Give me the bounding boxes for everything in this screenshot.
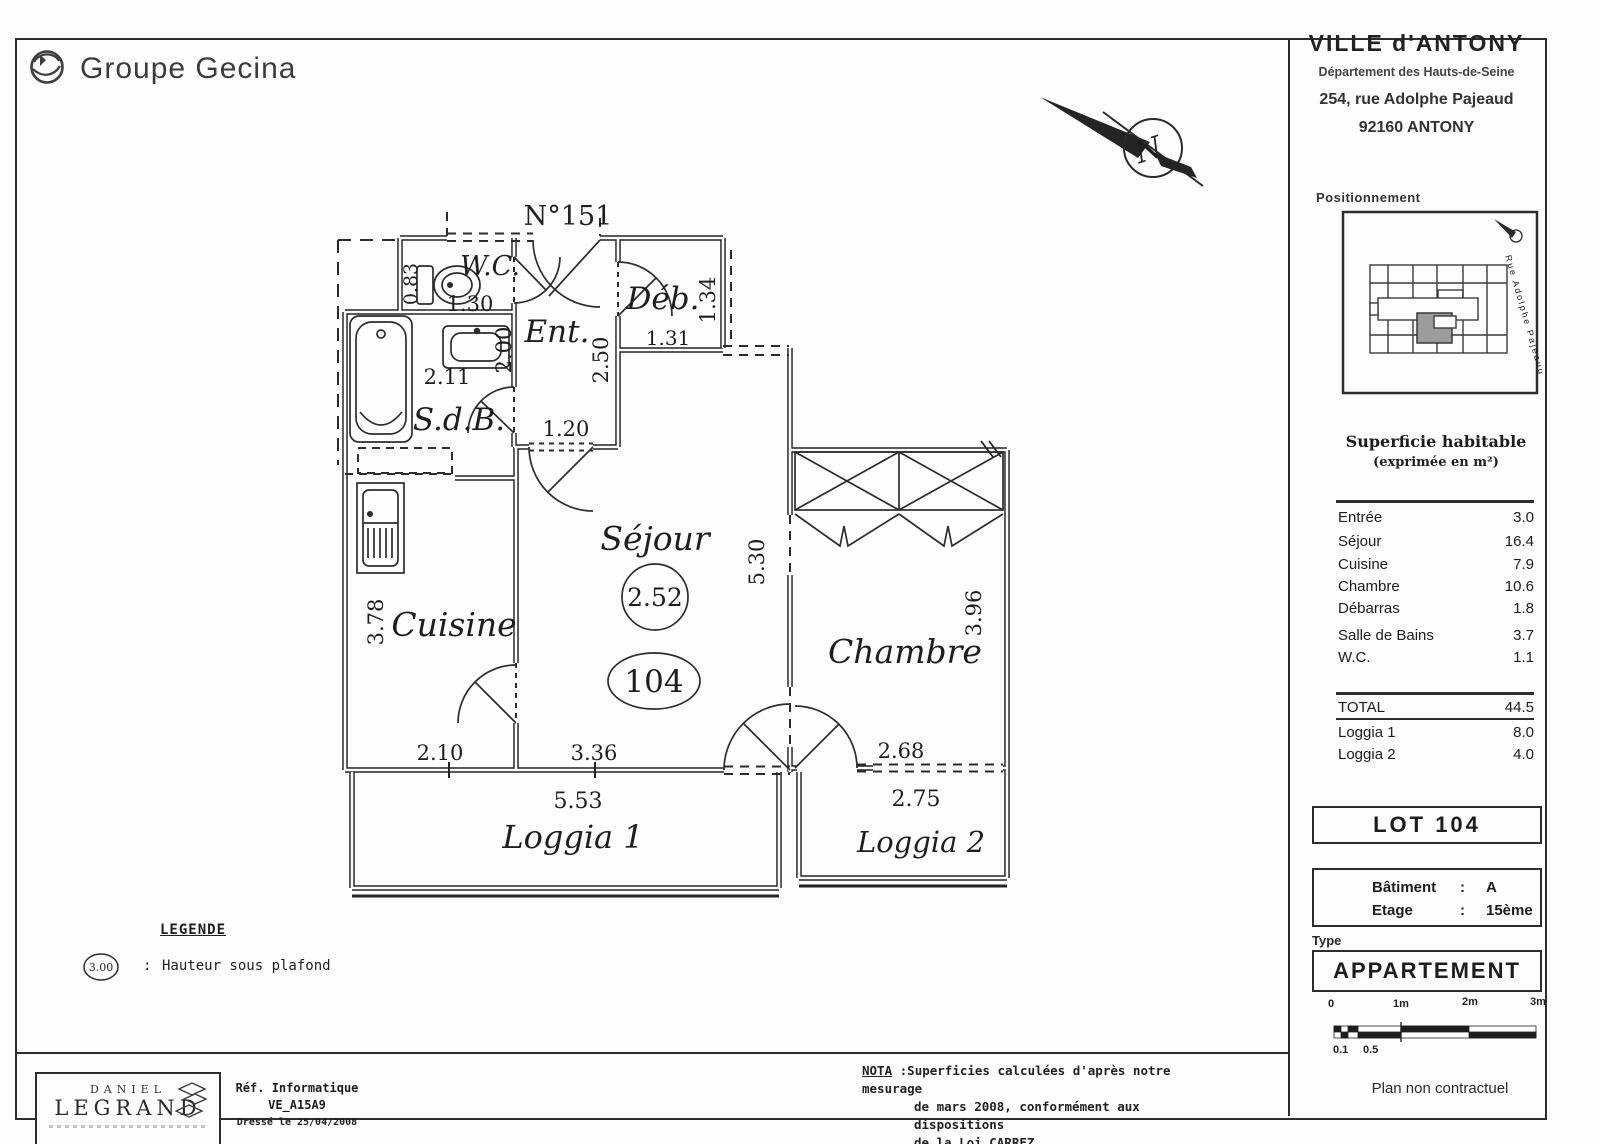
postal-city: 92160 ANTONY xyxy=(1288,119,1545,137)
nota-label: NOTA xyxy=(862,1063,892,1078)
room-label-sdb: S.d.B. xyxy=(413,402,505,438)
area-row: Cuisine7.9 xyxy=(1338,556,1534,573)
type-label: Type xyxy=(1312,933,1341,948)
area-value: 10.6 xyxy=(1505,578,1534,595)
areas-subtitle: (exprimée en m²) xyxy=(1338,455,1534,470)
dim-chambre-width: 2.68 xyxy=(878,739,925,763)
batiment-value: A xyxy=(1486,879,1497,896)
room-label-loggia1: Loggia 1 xyxy=(501,818,643,856)
brand-name: Groupe Gecina xyxy=(80,52,296,86)
footer-divider xyxy=(15,1052,1290,1054)
room-label-loggia2: Loggia 2 xyxy=(856,825,985,859)
total-value: 44.5 xyxy=(1505,699,1534,716)
firm-logo-icon xyxy=(175,1082,209,1124)
table-bottom-rule xyxy=(1336,718,1534,720)
kitchen-sink xyxy=(357,483,404,573)
total-row: TOTAL44.5 xyxy=(1338,699,1534,716)
legend-symbol: 3.00 xyxy=(78,951,124,983)
disclaimer: Plan non contractuel xyxy=(1350,1080,1530,1097)
room-label-wc: W.C. xyxy=(460,251,520,282)
positionnement-label: Positionnement xyxy=(1316,190,1421,205)
wardrobe xyxy=(795,452,1003,546)
dim-ent-depth: 2.50 xyxy=(589,337,613,384)
legend-title: LEGENDE xyxy=(160,922,226,938)
dim-cuisine-width: 2.10 xyxy=(417,741,464,765)
room-label-cuisine: Cuisine xyxy=(391,605,516,644)
plan-texts: N°151 W.C. 1.30 0.83 Ent. 2.50 1.20 Déb.… xyxy=(364,201,986,859)
lot-number-box: LOT 104 xyxy=(1312,806,1542,844)
nota-line3: de la Loi CARREZ. xyxy=(914,1134,1232,1144)
area-row: Entrée3.0 xyxy=(1338,509,1534,526)
dim-sdb-width: 2.11 xyxy=(424,365,471,389)
area-value: 3.0 xyxy=(1513,509,1534,526)
dim-chambre-depth: 3.96 xyxy=(962,590,986,637)
city-title: VILLE d'ANTONY xyxy=(1288,30,1545,57)
street-address: 254, rue Adolphe Pajeaud xyxy=(1288,91,1545,109)
room-label-sejour: Séjour xyxy=(600,519,711,558)
dim-ent-width: 1.20 xyxy=(543,417,590,441)
area-label: Chambre xyxy=(1338,578,1400,595)
area-row: Salle de Bains3.7 xyxy=(1338,627,1534,644)
area-label: W.C. xyxy=(1338,649,1371,666)
floor-plan: N°151 W.C. 1.30 0.83 Ent. 2.50 1.20 Déb.… xyxy=(320,185,1020,905)
etage-label: Etage xyxy=(1372,902,1460,919)
area-row: Chambre10.6 xyxy=(1338,578,1534,595)
right-panel-divider xyxy=(1288,38,1290,1116)
dim-wc-width: 1.30 xyxy=(447,292,494,316)
table-total-rule xyxy=(1336,692,1534,695)
batiment-label: Bâtiment xyxy=(1372,879,1460,896)
scale-tick-05: 0.5 xyxy=(1363,1044,1378,1056)
total-label: TOTAL xyxy=(1338,699,1385,716)
bathtub xyxy=(350,316,412,442)
area-value: 3.7 xyxy=(1513,627,1534,644)
loggia-row: Loggia 24.0 xyxy=(1338,746,1534,763)
type-value-box: APPARTEMENT xyxy=(1312,950,1542,992)
building-info-box: Bâtiment : A Etage : 15ème xyxy=(1312,868,1542,927)
etage-value: 15ème xyxy=(1486,902,1533,919)
area-row: W.C.1.1 xyxy=(1338,649,1534,666)
scale-tick-1m: 1m xyxy=(1393,998,1409,1010)
room-label-deb: Déb. xyxy=(626,281,700,317)
lot-bubble-value: 104 xyxy=(624,664,683,700)
legend-colon: : xyxy=(143,958,151,974)
ref-block: Réf. Informatique VE_A15A9 Dressé le 25/… xyxy=(222,1080,372,1131)
dim-wc-depth: 0.83 xyxy=(400,263,422,305)
ref-date: Dressé le 25/04/2008 xyxy=(222,1114,372,1131)
room-label-chambre: Chambre xyxy=(828,632,982,671)
gecina-logo-icon xyxy=(26,46,70,90)
dim-loggia2-width: 2.75 xyxy=(892,787,941,812)
mini-north-arrow xyxy=(1494,219,1522,242)
loggia-row: Loggia 18.0 xyxy=(1338,724,1534,741)
loggia-label: Loggia 1 xyxy=(1338,724,1396,741)
legend-symbol-value: 3.00 xyxy=(89,961,114,974)
colon: : xyxy=(1460,879,1486,896)
dim-sejour-width: 3.36 xyxy=(571,741,618,765)
area-value: 7.9 xyxy=(1513,556,1534,573)
site-buildings xyxy=(1370,265,1507,353)
dim-sdb-depth: 2.00 xyxy=(492,327,516,374)
areas-title: Superficie habitable xyxy=(1338,432,1534,451)
area-label: Cuisine xyxy=(1338,556,1388,573)
area-label: Salle de Bains xyxy=(1338,627,1434,644)
colon: : xyxy=(1460,902,1486,919)
area-value: 1.1 xyxy=(1513,649,1534,666)
floorplan-document: Groupe Gecina VILLE d'ANTONY Département… xyxy=(0,0,1600,1144)
area-row: Débarras1.8 xyxy=(1338,600,1534,617)
room-label-ent: Ent. xyxy=(524,314,590,350)
area-value: 16.4 xyxy=(1505,533,1534,550)
scale-tick-2m: 2m xyxy=(1462,996,1478,1008)
nota-block: NOTA :Superficies calculées d'après notr… xyxy=(862,1062,1232,1144)
loggia-value: 4.0 xyxy=(1513,746,1534,763)
dim-deb-depth: 1.34 xyxy=(696,277,720,324)
dim-cuisine-depth: 3.78 xyxy=(364,599,388,646)
loggia-label: Loggia 2 xyxy=(1338,746,1396,763)
unit-number: N°151 xyxy=(524,201,613,232)
ref-value: VE_A15A9 xyxy=(222,1097,372,1114)
north-arrow: N xyxy=(1025,80,1220,205)
department: Département des Hauts-de-Seine xyxy=(1288,65,1545,79)
area-value: 1.8 xyxy=(1513,600,1534,617)
firm-box: DANIEL LEGRAND xyxy=(35,1072,221,1144)
loggia-value: 8.0 xyxy=(1513,724,1534,741)
area-label: Débarras xyxy=(1338,600,1400,617)
area-label: Entrée xyxy=(1338,509,1382,526)
batiment-row: Bâtiment : A xyxy=(1372,879,1540,896)
etage-row: Etage : 15ème xyxy=(1372,902,1540,919)
positionnement-map: Rue Adolphe Pajeaud xyxy=(1322,206,1542,396)
address-block: VILLE d'ANTONY Département des Hauts-de-… xyxy=(1288,30,1545,137)
dim-sejour-depth: 5.30 xyxy=(745,539,769,586)
table-top-rule xyxy=(1336,500,1534,503)
ref-label: Réf. Informatique xyxy=(222,1080,372,1097)
nota-line1: :Superficies calculées d'après notre mes… xyxy=(862,1063,1171,1096)
firm-microtext xyxy=(49,1125,207,1128)
nota-line2: de mars 2008, conformément aux dispositi… xyxy=(914,1098,1232,1134)
dim-loggia1-width: 5.53 xyxy=(554,789,603,814)
scale-tick-0: 0 xyxy=(1328,998,1334,1010)
scale-tick-3m: 3m xyxy=(1530,996,1546,1008)
legend-text: Hauteur sous plafond xyxy=(162,958,331,974)
scale-tick-01: 0.1 xyxy=(1333,1044,1348,1056)
area-row: Séjour16.4 xyxy=(1338,533,1534,550)
dim-deb-width: 1.31 xyxy=(646,326,691,350)
area-label: Séjour xyxy=(1338,533,1381,550)
ceiling-height-value: 2.52 xyxy=(627,583,683,612)
